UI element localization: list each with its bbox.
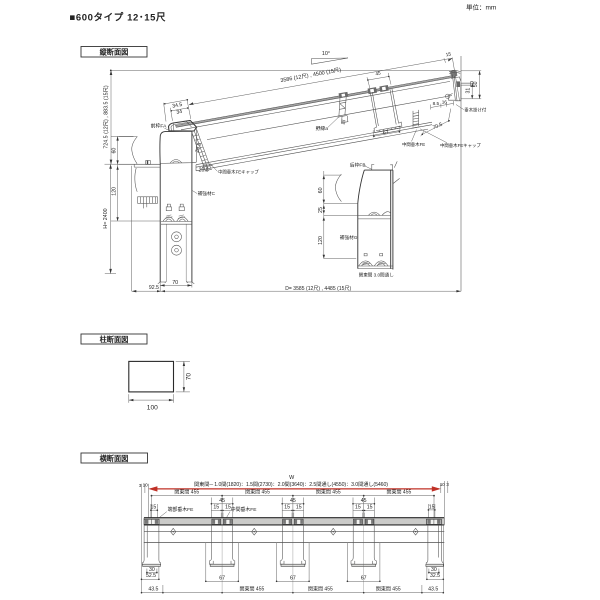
svg-text:関東間 3.0間通し: 関東間 3.0間通し <box>359 271 395 278</box>
svg-text:52.5: 52.5 <box>146 573 156 579</box>
svg-text:92.5: 92.5 <box>149 285 159 291</box>
svg-text:724.5 (12尺) , 883.5 (15尺): 724.5 (12尺) , 883.5 (15尺) <box>102 85 109 149</box>
svg-text:中間垂木FE: 中間垂木FE <box>231 506 258 513</box>
svg-text:120: 120 <box>112 187 118 196</box>
svg-text:100: 100 <box>147 404 158 411</box>
svg-text:16: 16 <box>442 99 448 104</box>
svg-text:柱断面図: 柱断面図 <box>100 335 129 344</box>
svg-text:15: 15 <box>151 505 157 511</box>
svg-text:10: 10 <box>143 482 149 487</box>
svg-text:関東間 455: 関東間 455 <box>308 586 333 593</box>
svg-text:15: 15 <box>284 505 290 511</box>
svg-text:中間垂木FE: 中間垂木FE <box>402 141 425 148</box>
svg-text:10: 10 <box>440 482 446 487</box>
svg-text:垂木掛け付: 垂木掛け付 <box>464 106 487 113</box>
svg-text:15: 15 <box>429 504 435 510</box>
svg-text:関東間 455: 関東間 455 <box>376 586 401 593</box>
svg-text:3: 3 <box>446 482 449 487</box>
svg-text:関東間 455: 関東間 455 <box>240 586 265 593</box>
svg-text:単位：mm: 単位：mm <box>466 3 496 12</box>
svg-text:120: 120 <box>318 236 324 245</box>
svg-text:67: 67 <box>290 576 296 582</box>
svg-text:60: 60 <box>318 187 324 193</box>
svg-text:20.5: 20.5 <box>199 168 209 174</box>
svg-text:中間垂木FEキャップ: 中間垂木FEキャップ <box>440 142 481 149</box>
svg-text:45: 45 <box>219 498 225 504</box>
svg-text:60: 60 <box>112 148 118 154</box>
svg-text:関東間 455: 関東間 455 <box>316 488 341 495</box>
svg-text:43.5: 43.5 <box>428 587 438 593</box>
svg-text:野縁a: 野縁a <box>316 125 329 132</box>
svg-text:縦断面図: 縦断面図 <box>100 48 129 57</box>
svg-text:H= 2400: H= 2400 <box>103 208 109 228</box>
svg-text:70: 70 <box>186 373 193 381</box>
svg-text:関東間 455: 関東間 455 <box>174 488 199 495</box>
svg-text:67: 67 <box>219 576 225 582</box>
svg-text:70: 70 <box>172 280 178 286</box>
svg-text:43.5: 43.5 <box>148 587 158 593</box>
svg-text:■600タイプ 12･15尺: ■600タイプ 12･15尺 <box>70 12 166 24</box>
svg-text:15: 15 <box>355 505 361 511</box>
svg-text:45: 45 <box>361 498 367 504</box>
svg-text:横断面図: 横断面図 <box>100 454 129 463</box>
svg-text:補強材C: 補強材C <box>340 234 358 241</box>
svg-text:50: 50 <box>473 81 479 87</box>
svg-text:45: 45 <box>290 498 296 504</box>
svg-text:15: 15 <box>296 505 302 511</box>
svg-text:補強材C: 補強材C <box>198 190 216 197</box>
svg-text:34: 34 <box>176 109 183 116</box>
svg-text:67: 67 <box>382 129 389 136</box>
svg-text:関東間─ 1.0間(1820)：1.5間(2730)：2.0: 関東間─ 1.0間(1820)：1.5間(2730)：2.0間(3640)：2.… <box>194 480 388 488</box>
svg-text:32.5: 32.5 <box>430 573 440 579</box>
svg-text:31: 31 <box>466 88 472 94</box>
svg-text:15: 15 <box>367 505 373 511</box>
svg-text:3: 3 <box>139 483 142 488</box>
svg-text:10°: 10° <box>322 51 330 57</box>
svg-text:関東間 455: 関東間 455 <box>245 488 270 495</box>
svg-text:D= 3585 (12尺) , 4485 (15尺): D= 3585 (12尺) , 4485 (15尺) <box>285 286 351 292</box>
svg-text:15: 15 <box>213 505 219 511</box>
svg-text:后枠FB: 后枠FB <box>350 162 366 169</box>
svg-text:端部垂木FE: 端部垂木FE <box>168 506 195 513</box>
svg-text:中間垂木FEキャップ: 中間垂木FEキャップ <box>218 169 259 176</box>
svg-text:67: 67 <box>361 576 367 582</box>
svg-text:25: 25 <box>318 207 324 213</box>
svg-text:8.5: 8.5 <box>433 101 440 106</box>
svg-text:関東間 455: 関東間 455 <box>387 488 412 495</box>
